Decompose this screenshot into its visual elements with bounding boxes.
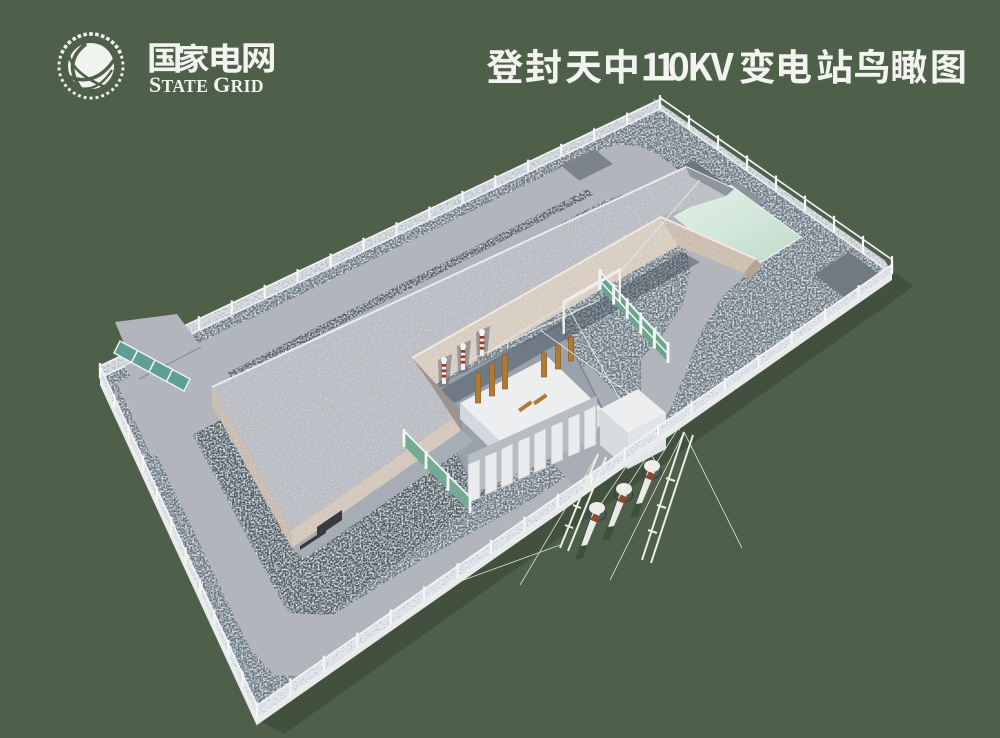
svg-text:STATE GRID: STATE GRID [149, 72, 264, 97]
